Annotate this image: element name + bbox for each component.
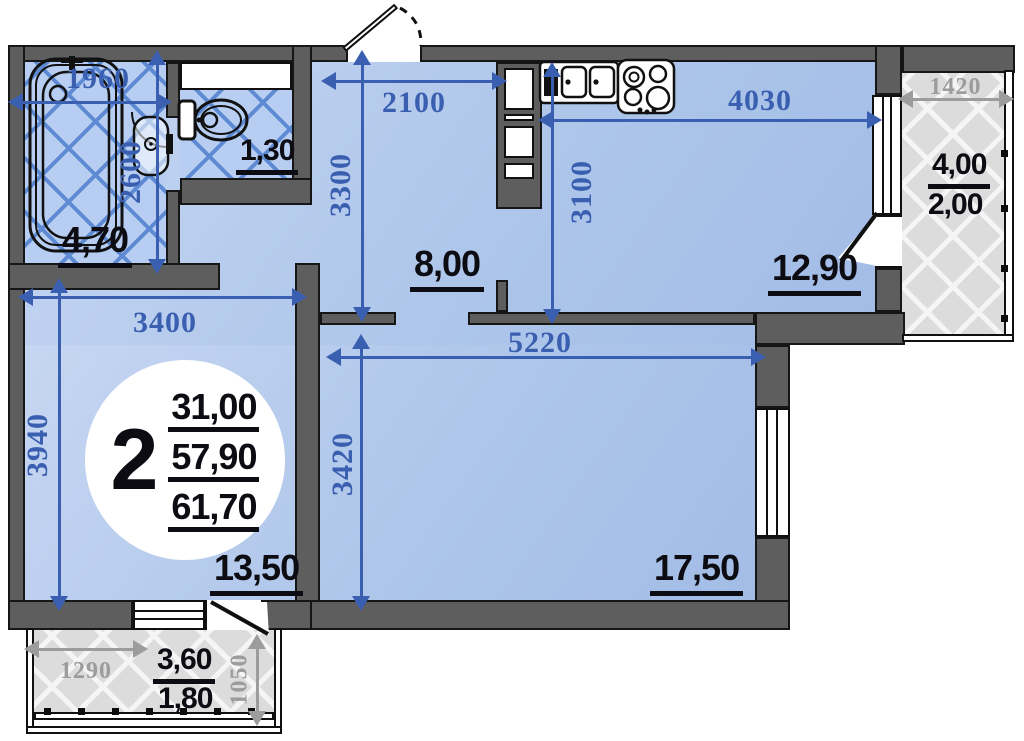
total-area-value: 61,70: [168, 489, 259, 532]
dim-arrow-kitchen-depth: [551, 76, 554, 310]
area-label-living-room: 17,50: [650, 550, 743, 586]
apartment-summary-badge: 2 31,00 57,90 61,70: [85, 360, 285, 560]
area-label-hallway: 8,00: [410, 246, 484, 282]
area-value: 3,60: [153, 643, 215, 684]
area-label-bottom-balcony-full: 3,60: [153, 645, 215, 675]
area-label-right-balcony-full: 4,00: [928, 150, 990, 180]
area-value: 1,80: [158, 682, 212, 715]
area-label-bedroom: 13,50: [210, 550, 303, 586]
dim-arrow-bottom-balcony-width: [38, 648, 134, 651]
dim-arrow-hallway-width: [335, 80, 493, 83]
dim-arrow-bedroom-width: [32, 296, 293, 299]
dim-arrow-bedroom-depth: [58, 292, 61, 597]
dim-label-living-width: 5220: [455, 326, 625, 360]
area-value: 17,50: [650, 547, 743, 596]
area-value: 12,90: [768, 247, 861, 296]
dim-label-bottom-balcony-width: 1290: [36, 658, 136, 685]
area-label-right-balcony-reduced: 2,00: [928, 190, 982, 220]
dim-label-hallway-depth: 3300: [324, 125, 358, 245]
area-value: 4,00: [928, 148, 990, 189]
dim-label-kitchen-depth: 3100: [565, 132, 599, 252]
dim-label-hallway-width: 2100: [334, 86, 494, 120]
area-label-bottom-balcony-reduced: 1,80: [158, 684, 212, 714]
area-label-kitchen: 12,90: [768, 250, 861, 286]
floor-plan: 1960 2600 2100 3300 4030 3100 1420 3400 …: [0, 0, 1024, 741]
dim-label-kitchen-width: 4030: [660, 84, 860, 118]
area-label-toilet: 1,30: [236, 136, 298, 166]
area-summary: 31,00 57,90 61,70: [168, 389, 259, 532]
apartment-area-value: 57,90: [168, 439, 259, 482]
dim-label-bathroom-depth: 2600: [114, 112, 148, 232]
area-value: 8,00: [410, 243, 484, 292]
area-value: 2,00: [928, 188, 982, 221]
area-value: 1,30: [236, 134, 298, 175]
area-value: 13,50: [210, 547, 303, 596]
area-label-bathroom: 4,70: [58, 222, 132, 258]
dim-arrow-bottom-balcony-depth: [256, 648, 259, 712]
room-count: 2: [111, 417, 159, 503]
dim-arrow-living-depth: [360, 348, 363, 597]
living-area-value: 31,00: [168, 389, 259, 432]
dim-label-bedroom-width: 3400: [85, 306, 245, 340]
dim-label-living-depth: 3420: [326, 404, 360, 524]
dim-label-bedroom-depth: 3940: [21, 385, 55, 505]
dim-label-bathroom-width: 1960: [28, 62, 168, 96]
dim-arrow-bathroom-width: [22, 101, 158, 104]
dim-label-bottom-balcony-depth: 1050: [227, 620, 254, 740]
area-value: 4,70: [58, 219, 132, 268]
dim-label-right-balcony-width: 1420: [898, 74, 1013, 101]
dim-arrow-kitchen-width: [552, 119, 868, 122]
